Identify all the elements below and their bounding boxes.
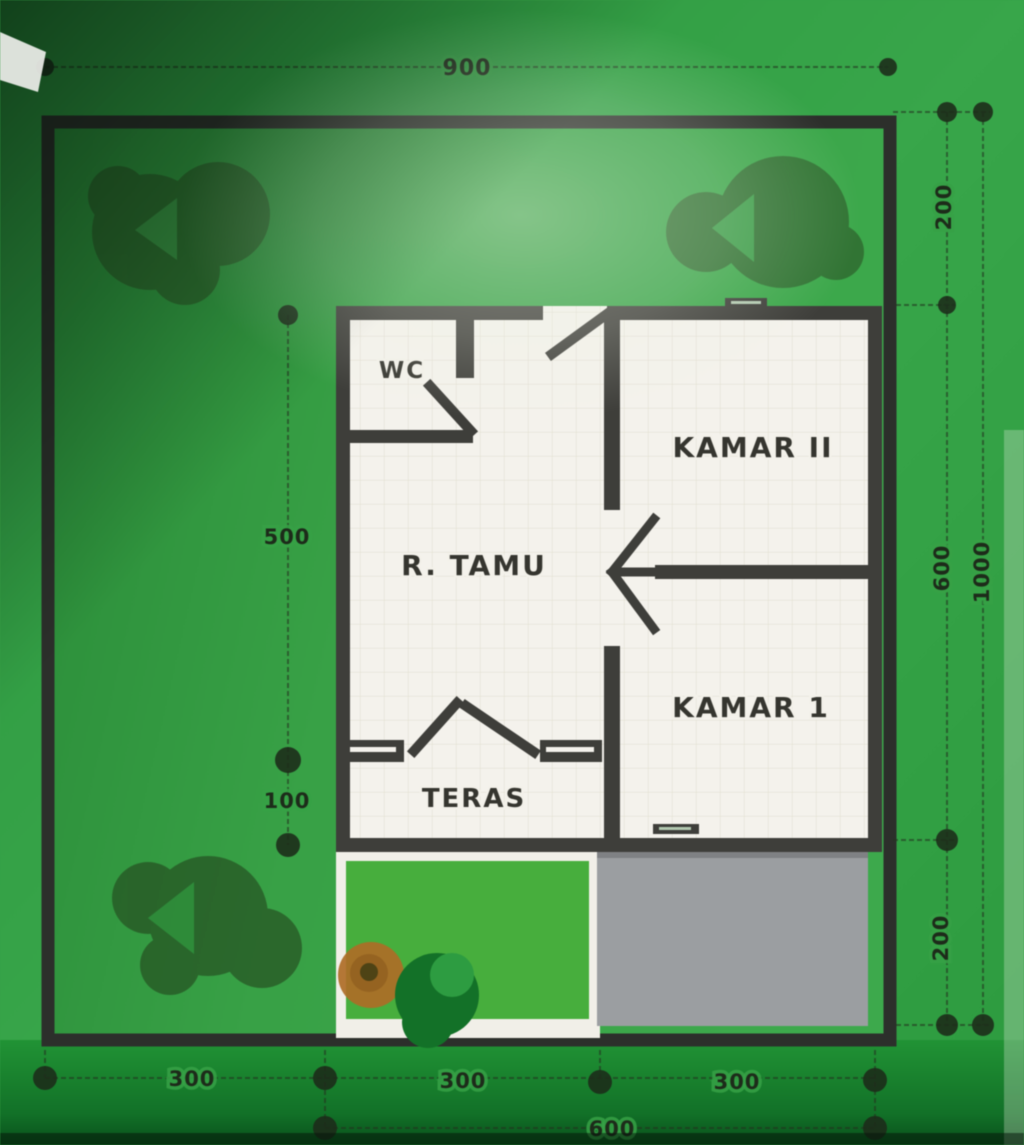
page-edge-right bbox=[1004, 430, 1024, 1145]
photo-bottom-edge bbox=[0, 1133, 1024, 1145]
floor-plan-photo: WC KAMAR II R. TAMU KAMAR 1 TERAS 9 bbox=[0, 0, 1024, 1145]
corner-shadow bbox=[0, 0, 1024, 1145]
